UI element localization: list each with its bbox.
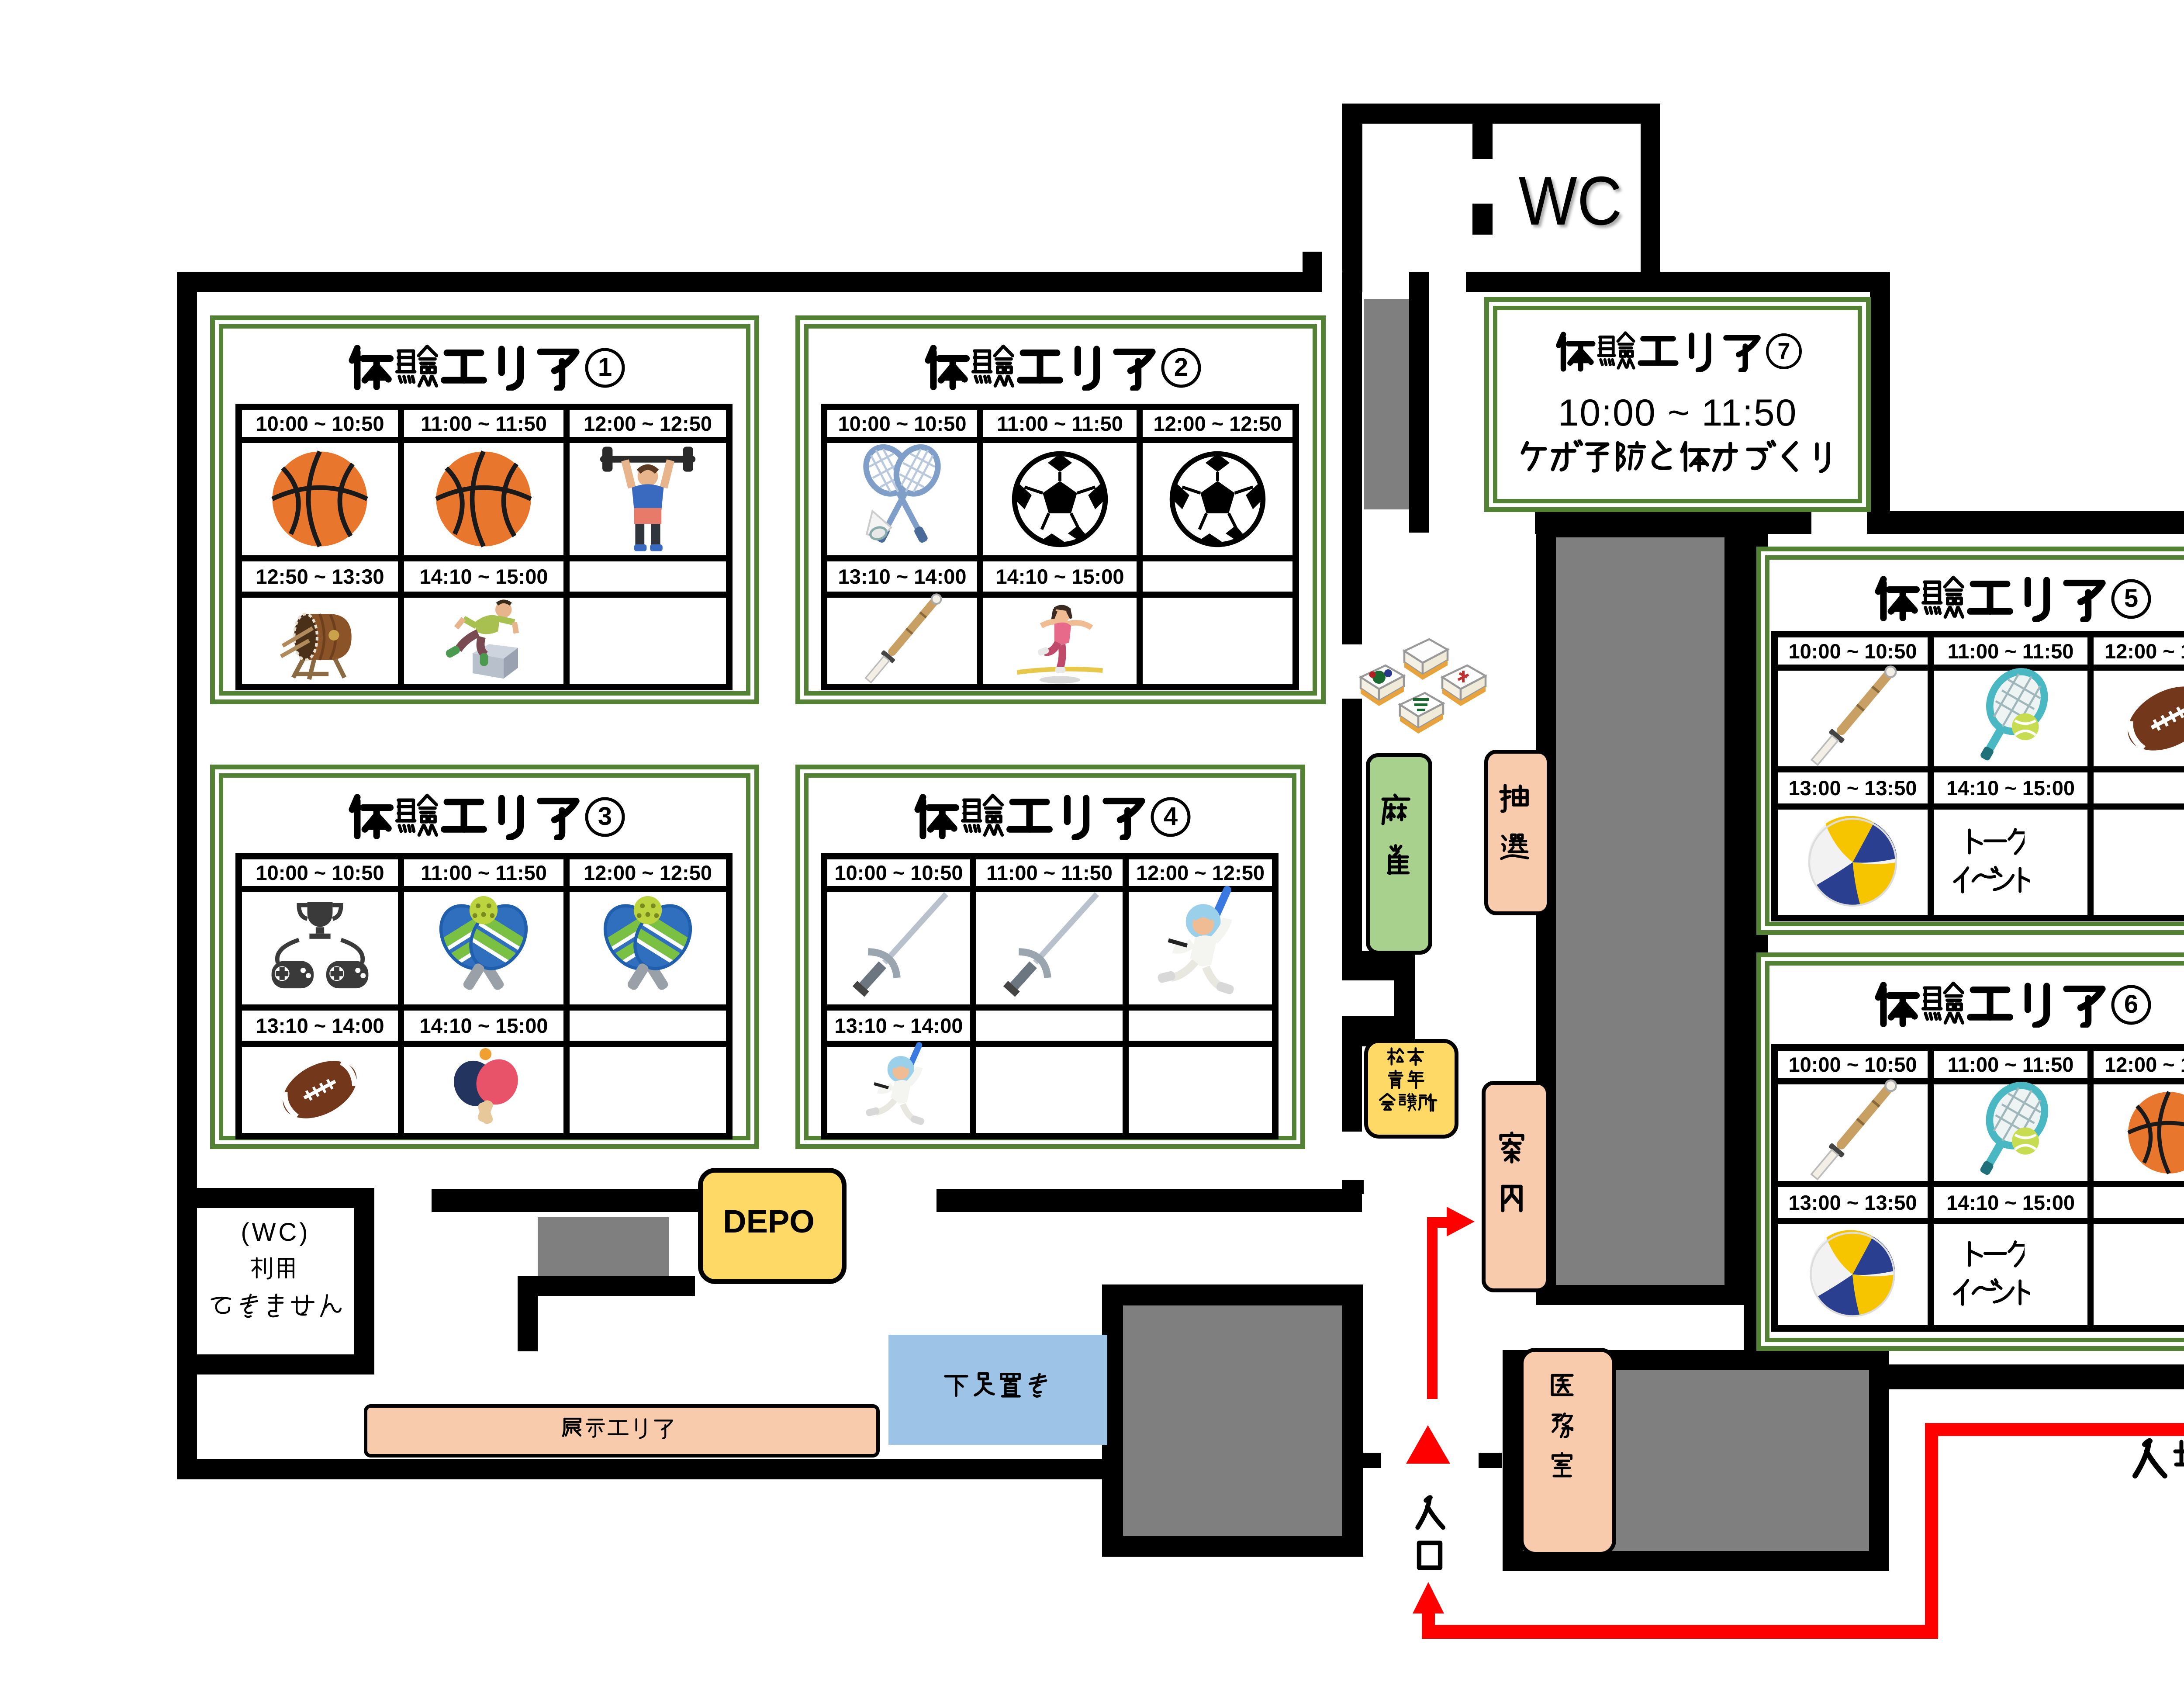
svg-text:2: 2 (1174, 353, 1188, 381)
svg-text:7: 7 (1778, 339, 1790, 364)
svg-text:6: 6 (2124, 990, 2138, 1018)
svg-text:3: 3 (598, 802, 612, 831)
svg-text:5: 5 (2124, 584, 2138, 613)
svg-text:1: 1 (598, 353, 612, 381)
svg-text:4: 4 (1164, 802, 1178, 831)
